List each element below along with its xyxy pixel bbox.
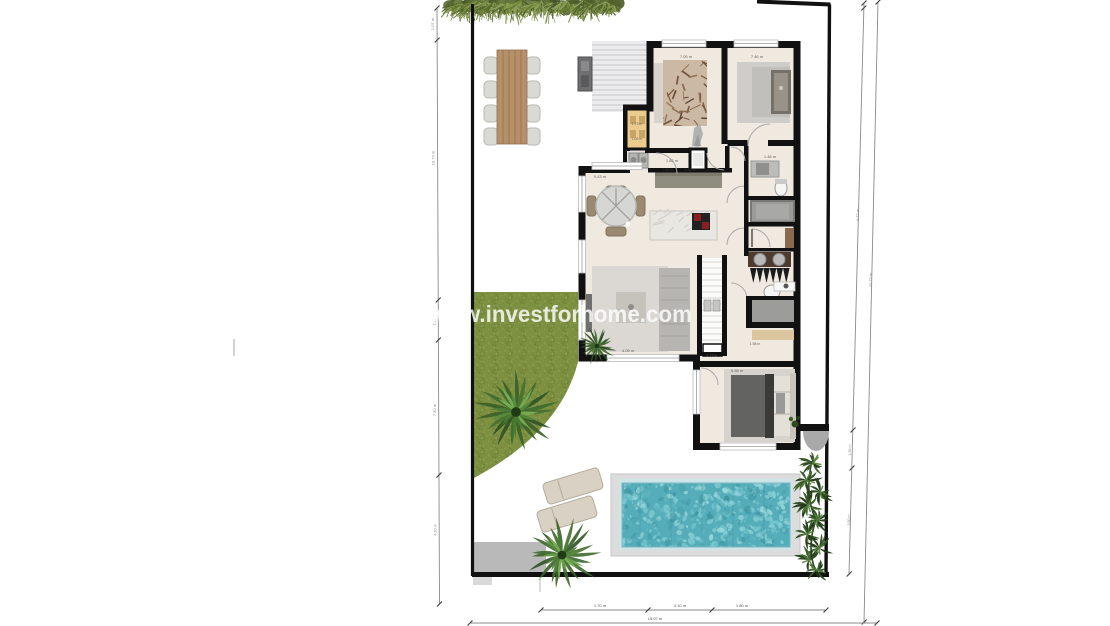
svg-text:15.07 m: 15.07 m: [648, 616, 663, 621]
svg-text:1.62 m: 1.62 m: [666, 158, 679, 163]
svg-text:www.investforhome.com: www.investforhome.com: [427, 301, 692, 327]
svg-text:1.07 m: 1.07 m: [430, 17, 435, 30]
svg-text:0.75 m: 0.75 m: [706, 168, 717, 172]
svg-text:5.43 m: 5.43 m: [594, 174, 607, 179]
svg-text:20.73 m: 20.73 m: [868, 272, 873, 287]
svg-text:1.80 m: 1.80 m: [736, 603, 749, 608]
svg-text:10.73 m: 10.73 m: [431, 150, 436, 165]
svg-text:1.98 m: 1.98 m: [750, 342, 761, 346]
svg-text:4.05 m: 4.05 m: [622, 348, 635, 353]
svg-text:3.50 m: 3.50 m: [847, 515, 851, 526]
svg-text:3.06 m: 3.06 m: [754, 403, 758, 414]
svg-text:4.10 m: 4.10 m: [674, 603, 687, 608]
svg-text:1.50 m: 1.50 m: [848, 445, 852, 456]
svg-text:4.30 m: 4.30 m: [434, 524, 438, 536]
svg-text:1.73 m: 1.73 m: [632, 122, 643, 126]
svg-text:6.73 m: 6.73 m: [855, 208, 860, 221]
svg-text:1.70 m: 1.70 m: [594, 603, 607, 608]
svg-text:7.50 m: 7.50 m: [432, 403, 437, 416]
svg-text:1.05 m: 1.05 m: [632, 137, 643, 141]
svg-text:0.55 m: 0.55 m: [663, 168, 674, 172]
svg-text:1.77 m: 1.77 m: [707, 354, 718, 358]
svg-text:5.38 m: 5.38 m: [731, 368, 744, 373]
svg-text:7.05 m: 7.05 m: [680, 54, 693, 59]
svg-text:1.48 m: 1.48 m: [764, 154, 777, 159]
svg-text:0.28 m: 0.28 m: [685, 168, 696, 172]
svg-text:7.46 m: 7.46 m: [751, 54, 764, 59]
